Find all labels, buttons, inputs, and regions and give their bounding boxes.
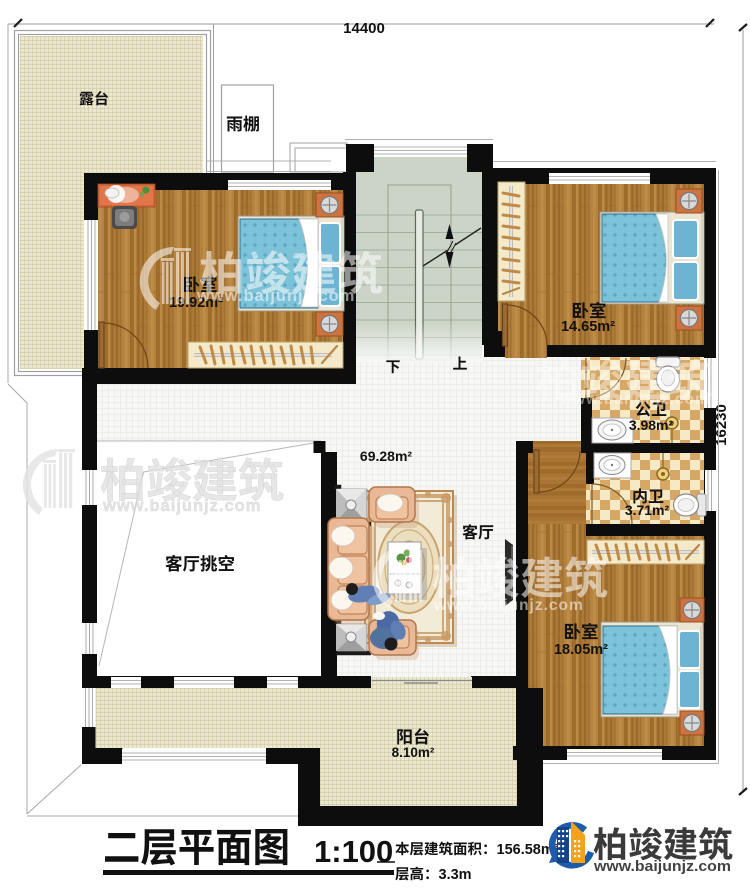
svg-text:www.baijunjz.com: www.baijunjz.com	[433, 597, 584, 614]
svg-text:www.baijunjz.com: www.baijunjz.com	[593, 858, 731, 875]
svg-text:8.10m²: 8.10m²	[392, 745, 435, 760]
svg-text:www.baijunjz.com: www.baijunjz.com	[196, 287, 355, 305]
svg-text:3.3m: 3.3m	[439, 867, 472, 883]
svg-text:www.baijunjz.com: www.baijunjz.com	[102, 497, 261, 515]
svg-text:14.65m²: 14.65m²	[561, 319, 615, 335]
svg-text:18.05m²: 18.05m²	[554, 642, 608, 658]
svg-text:www.baijunjz.com: www.baijunjz.com	[559, 391, 710, 408]
svg-text:3.98m²: 3.98m²	[629, 417, 674, 433]
svg-text:14400: 14400	[343, 20, 385, 37]
svg-text:69.28m²: 69.28m²	[360, 448, 412, 464]
svg-text:3.71m²: 3.71m²	[625, 502, 670, 518]
svg-text:1:100: 1:100	[314, 834, 393, 869]
